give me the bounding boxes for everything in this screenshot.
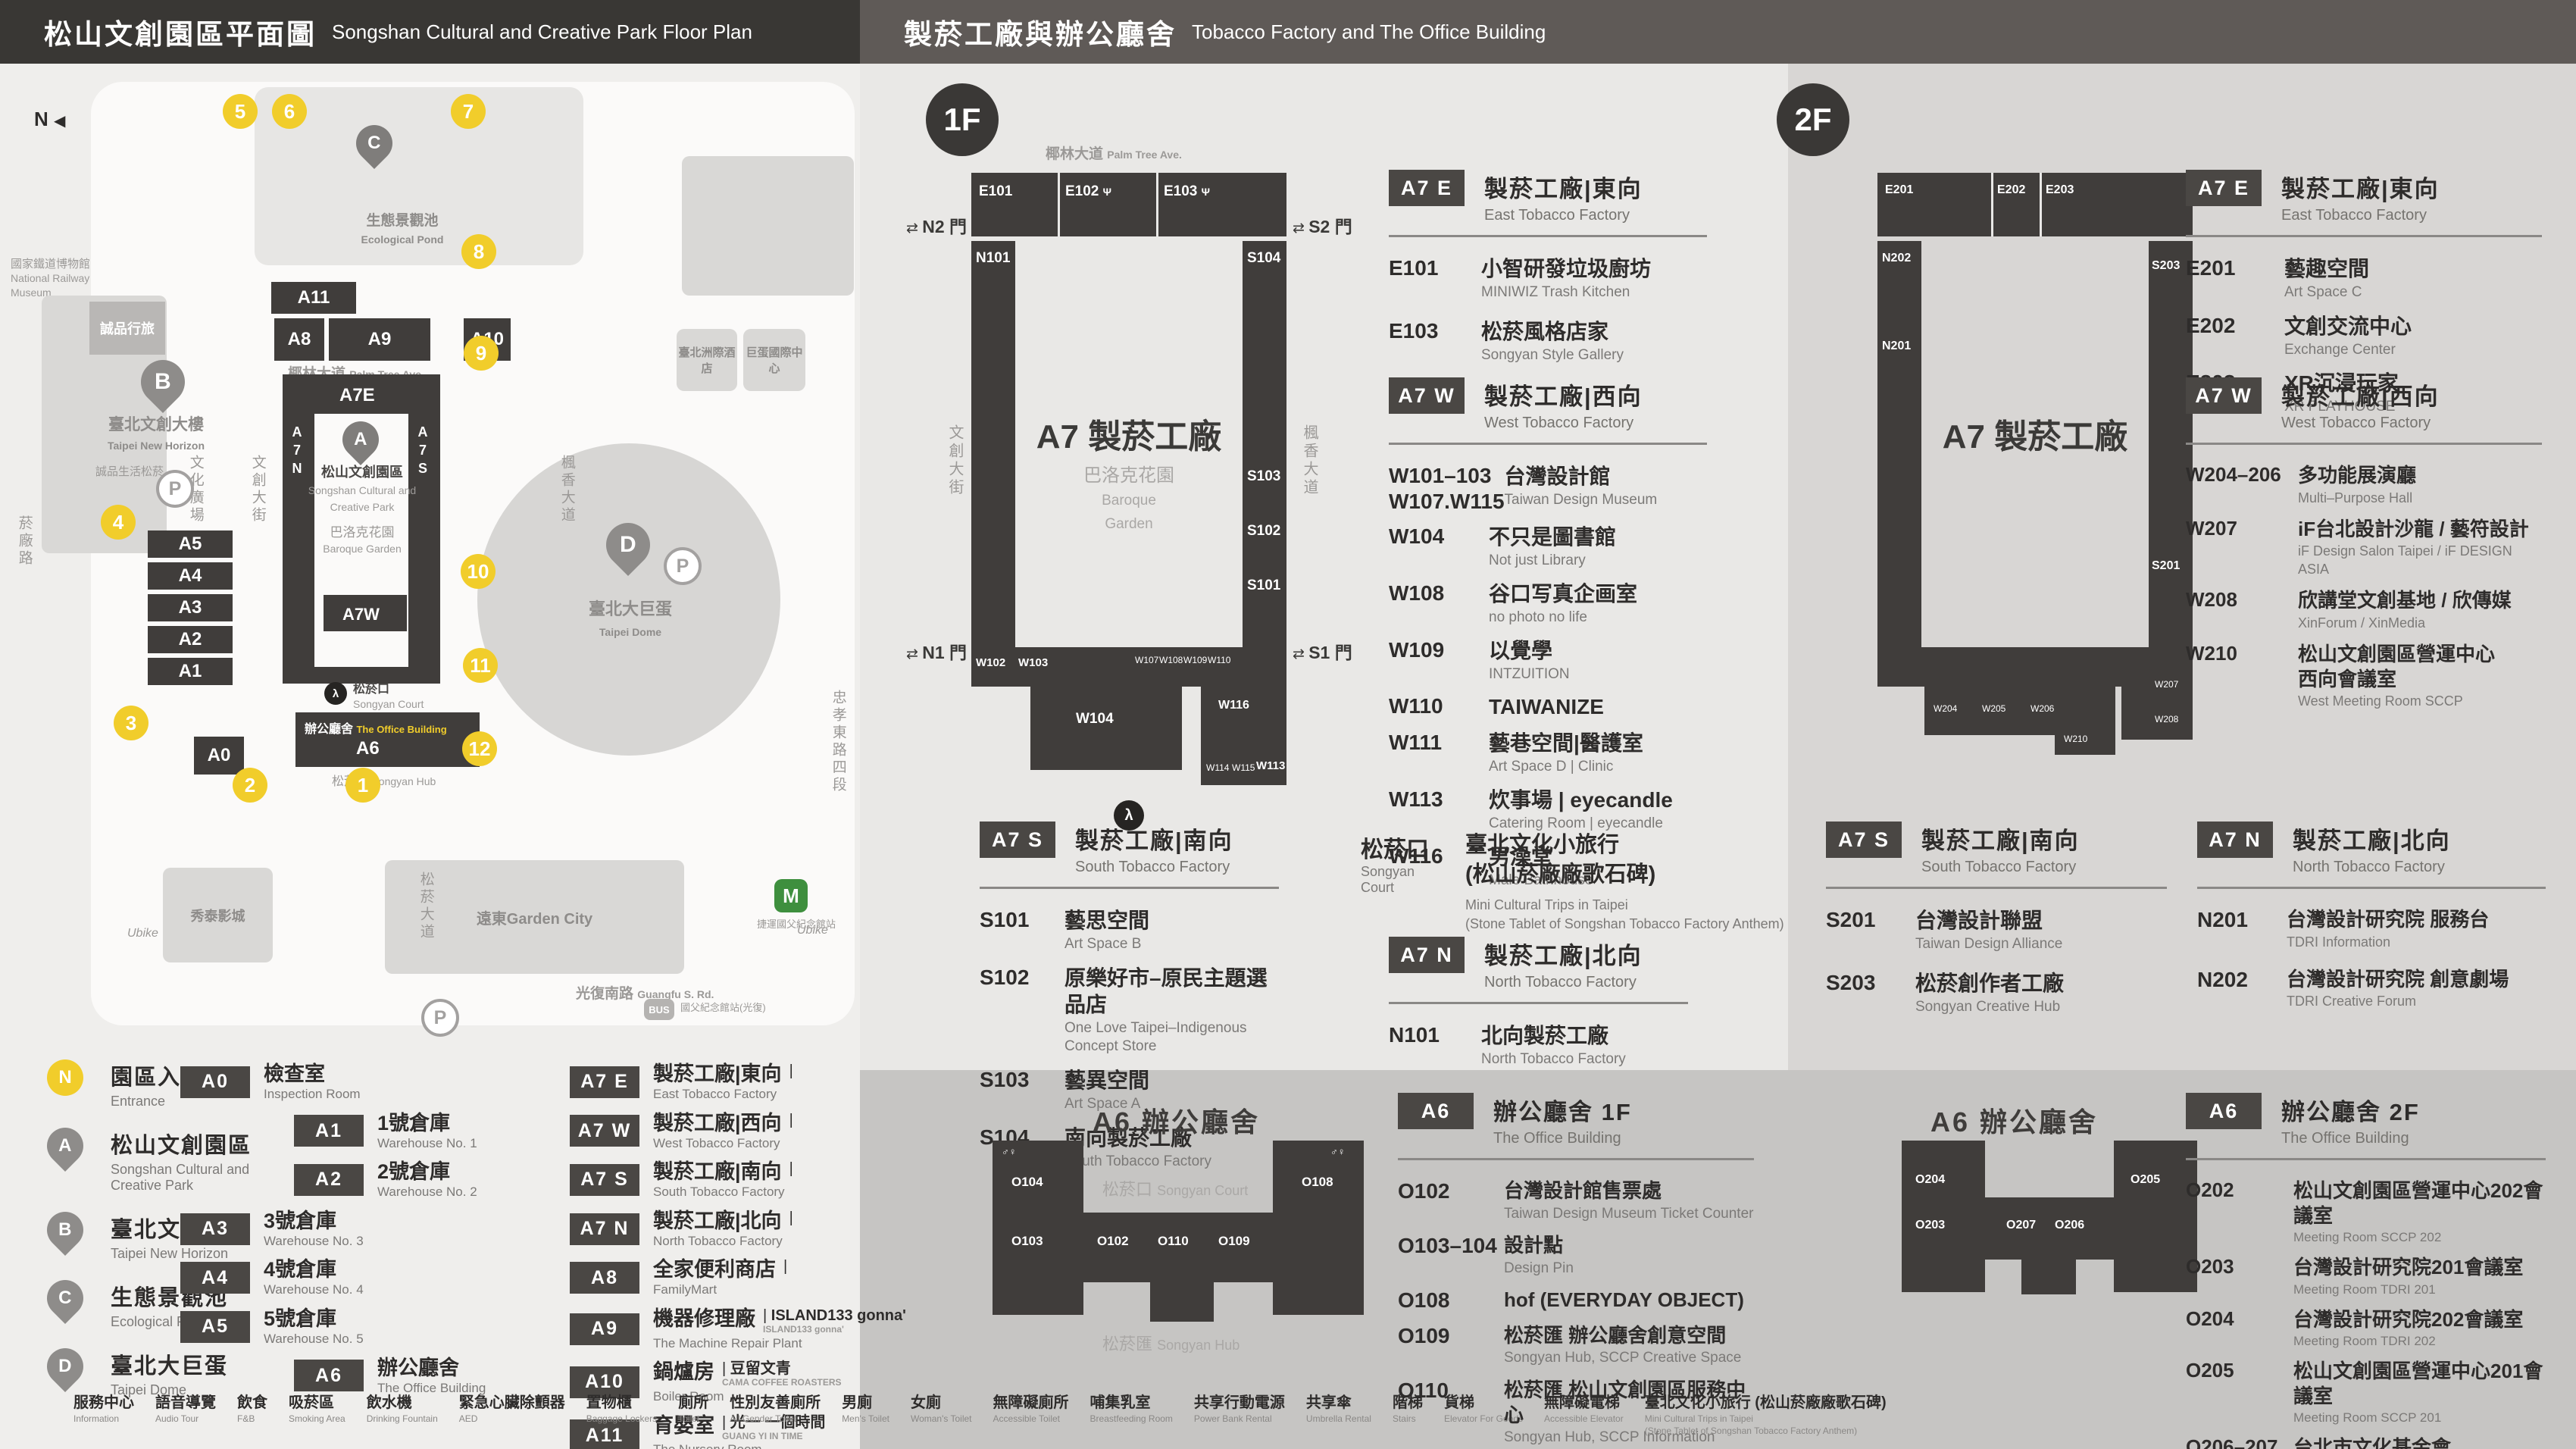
building-name-zh: 全家便利商店 xyxy=(653,1258,776,1282)
ubike-label: Ubike xyxy=(127,926,158,941)
facility-en: Woman's Toilet xyxy=(911,1413,972,1424)
room-label: W107 xyxy=(1135,655,1158,665)
room-label: W208 xyxy=(2155,714,2178,724)
room-label: W103 xyxy=(1018,656,1048,669)
room-label: N201 xyxy=(1882,340,1911,353)
building-code-badge: A5 xyxy=(180,1311,250,1343)
building-a9: A9 xyxy=(329,318,430,361)
building-code-badge: A4 xyxy=(180,1262,250,1294)
pond-label: 生態景觀池Ecological Pond xyxy=(334,212,470,249)
room-label: O206 xyxy=(2055,1219,2084,1232)
header-left: 松山文創園區平面圖 Songshan Cultural and Creative… xyxy=(0,0,860,64)
section-badge: A7 N xyxy=(2197,822,2273,858)
building-code-badge: A2 xyxy=(294,1164,364,1196)
office2-stem xyxy=(2021,1260,2076,1294)
section-zh: 製菸工廠|東向 xyxy=(1484,170,1643,204)
section-a7w-2f: A7 W 製菸工廠|西向West Tobacco Factory W204–20… xyxy=(2186,377,2542,720)
cc-blvd-label: 文創大街 xyxy=(249,455,267,524)
facility-zh: 廁所 xyxy=(678,1390,708,1412)
room-label: N101 xyxy=(976,250,1010,267)
building-code-badge: A0 xyxy=(180,1066,250,1098)
place-pin-icon: N xyxy=(47,1059,83,1096)
directory-row: E103 松菸風格店家Songyan Style Gallery xyxy=(1389,318,1707,365)
building-code-badge: A3 xyxy=(180,1213,250,1245)
directory-row: O206–207 台北市文化基金會松山文創園區營運中心Taipei Cultur… xyxy=(2186,1435,2546,1449)
office-building-label: 辦公廳舍 The Office Building xyxy=(305,718,447,737)
section-en: East Tobacco Factory xyxy=(1484,207,1643,224)
facility-legend-item: 服務中心Information xyxy=(67,1390,134,1424)
divider xyxy=(1826,887,2167,889)
divider xyxy=(1389,443,1707,445)
section-zh: 製菸工廠|北向 xyxy=(2293,822,2451,856)
section-en: The Office Building xyxy=(2281,1130,2420,1147)
section-a6-1f: A6 辦公廳舍 1FThe Office Building O102 台灣設計館… xyxy=(1398,1093,1754,1449)
divider xyxy=(980,887,1279,889)
parking-icon: P xyxy=(421,999,459,1037)
section-zh: 製菸工廠|西向 xyxy=(1484,377,1643,412)
section-badge: A7 E xyxy=(2186,170,2262,206)
building-code-badge: A7 W xyxy=(570,1115,639,1147)
place-pin-icon: C xyxy=(39,1272,91,1324)
facility-zh: 共享行動電源 xyxy=(1194,1390,1285,1412)
building-name-en: Warehouse No. 3 xyxy=(264,1234,364,1249)
facility-legend-item: 無障礙廁所Accessible Toilet xyxy=(986,1390,1069,1424)
facility-en: Drinking Fountain xyxy=(367,1413,438,1424)
bus-stop-icon: BUS xyxy=(644,999,674,1020)
room-label: N202 xyxy=(1882,252,1911,265)
room-label: W110 xyxy=(1208,655,1230,665)
gate-s2: ⇄ S2 門 xyxy=(1293,212,1352,238)
facility-zh: 語音導覽 xyxy=(155,1390,216,1412)
directory-row: S101 藝思空間Art Space B xyxy=(980,907,1279,954)
building-a5: A5 xyxy=(148,530,233,558)
directory-row: E202 文創交流中心Exchange Center xyxy=(2186,313,2542,360)
songyan-court-note: 松菸口Songyan Court 臺北文化小旅行(松山菸廠廠歌石碑) Mini … xyxy=(1361,831,1785,933)
building-a0: A0 xyxy=(194,737,244,775)
directory-row: W207 iF台北設計沙龍 / 藝符設計iF Design Salon Taip… xyxy=(2186,517,2542,578)
legend-building-row: A8 全家便利商店 FamilyMart xyxy=(455,1258,906,1297)
facility-legend-item: 緊急心臟除顫器AED xyxy=(452,1390,565,1424)
divider xyxy=(2186,443,2542,445)
entrance-number: 5 xyxy=(223,94,258,129)
legend-building-row: A7 E 製菸工廠|東向 East Tobacco Factory xyxy=(455,1062,906,1102)
railway-museum-label: 國家鐵道博物館National Railway Museum xyxy=(11,258,94,300)
gate-s1: ⇄ S1 門 xyxy=(1293,638,1352,664)
facility-legend-item: 語音導覽Audio Tour xyxy=(148,1390,216,1424)
office1-plan-title: A6 辦公廳舍 xyxy=(1093,1100,1260,1140)
directory-row: O110 松菸匯 松山文創園區服務中心Songyan Hub, SCCP Inf… xyxy=(1398,1378,1754,1449)
songyan-court-icon: λ xyxy=(324,682,347,705)
room-label: W205 xyxy=(1982,703,2005,714)
building-name-en: Inspection Room xyxy=(264,1087,361,1102)
section-zh: 辦公廳舍 2F xyxy=(2281,1093,2420,1127)
facility-zh: 緊急心臟除顫器 xyxy=(459,1390,565,1412)
plan-maple-label: 楓香大道 xyxy=(1299,424,1321,497)
floor-plan-poster: 松山文創園區平面圖 Songshan Cultural and Creative… xyxy=(0,0,2576,1449)
facility-legend-item: 廁所Toilet xyxy=(671,1390,708,1424)
room-label: O109 xyxy=(1218,1234,1250,1249)
tenant-brand xyxy=(789,1112,793,1129)
directory-row: W109 以覺學INTZUITION xyxy=(1389,637,1707,684)
place-pin-icon: D xyxy=(39,1341,91,1392)
directory-row: W111 藝巷空間|醫護室Art Space D | Clinic xyxy=(1389,730,1707,777)
directory-row: W208 欣講堂文創基地 / 欣傳媒XinForum / XinMedia xyxy=(2186,588,2542,632)
facility-legend-item: 性別友善廁所All Gender Toilet xyxy=(723,1390,821,1424)
floor2-badge: 2F xyxy=(1777,83,1849,156)
building-name-zh: 機器修理廠 xyxy=(653,1307,755,1331)
facility-en: Audio Tour xyxy=(155,1413,216,1424)
directory-row: O109 松菸匯 辦公廳舍創意空間Songyan Hub, SCCP Creat… xyxy=(1398,1323,1754,1368)
section-badge: A7 N xyxy=(1389,937,1465,973)
room-label: W109 xyxy=(1183,655,1207,665)
entrance-number: 12 xyxy=(462,731,497,766)
divider xyxy=(2186,1158,2546,1160)
room-label: W102 xyxy=(976,656,1005,669)
section-zh: 辦公廳舍 1F xyxy=(1493,1093,1632,1127)
room-label: W104 xyxy=(1076,711,1114,728)
park-name-label: 松山文創園區Songshan Cultural andCreative Park xyxy=(303,464,421,515)
entrance-number: 10 xyxy=(461,554,496,589)
section-badge: A6 xyxy=(2186,1093,2262,1129)
facility-en: All Gender Toilet xyxy=(730,1413,821,1424)
section-en: North Tobacco Factory xyxy=(2293,859,2451,876)
section-badge: A7 W xyxy=(1389,377,1465,414)
plan-ccblvd-label: 文創大街 xyxy=(944,424,966,497)
floor1-badge: 1F xyxy=(926,83,999,156)
north-indicator: N ◀ xyxy=(34,108,65,131)
room-label: O104 xyxy=(1011,1175,1043,1190)
building-code-badge: A7 N xyxy=(570,1213,639,1245)
building-a7w-label: A7W xyxy=(342,605,380,624)
tenant-brand: ISLAND133 gonna'ISLAND133 gonna' xyxy=(763,1307,906,1335)
section-badge: A6 xyxy=(1398,1093,1474,1129)
office1-stem xyxy=(1150,1282,1214,1322)
room-divider xyxy=(1058,173,1060,236)
section-a7n-1f: A7 N 製菸工廠|北向North Tobacco Factory N101 北… xyxy=(1389,937,1688,1085)
court-zh: 松菸口 xyxy=(1361,837,1429,862)
toilet-icon: ♂♀ xyxy=(1330,1146,1346,1157)
section-a7w-1f: A7 W 製菸工廠|西向West Tobacco Factory W101–10… xyxy=(1389,377,1707,900)
directory-row: W110 TAIWANIZE xyxy=(1389,693,1707,720)
section-badge: A7 E xyxy=(1389,170,1465,206)
section-zh: 製菸工廠|南向 xyxy=(1075,822,1233,856)
facility-zh: 共享傘 xyxy=(1306,1390,1371,1412)
building-name-zh: 製菸工廠|西向 xyxy=(653,1112,782,1135)
facility-en: Information xyxy=(73,1413,134,1424)
section-en: West Tobacco Factory xyxy=(2281,415,2440,432)
facility-legend-item: 男廁Men's Toilet xyxy=(835,1390,889,1424)
songyan-court-label: 松菸口Songyan Court xyxy=(353,682,424,712)
room-label: S102 xyxy=(1247,523,1280,540)
facility-en: Toilet xyxy=(678,1413,708,1424)
section-en: The Office Building xyxy=(1493,1130,1632,1147)
office2-left-wing xyxy=(1902,1141,1985,1292)
building-name-en: North Tobacco Factory xyxy=(653,1234,793,1249)
parking-icon: P xyxy=(664,547,702,585)
divider xyxy=(2186,235,2542,237)
directory-row: O204 台灣設計研究院202會議室Meeting Room TDRI 202 xyxy=(2186,1307,2546,1350)
divider xyxy=(2197,887,2546,889)
gate-n1: ⇄ N1 門 xyxy=(906,638,967,664)
entrance-number: 6 xyxy=(272,94,307,129)
legend-building-row: A7 S 製菸工廠|南向 South Tobacco Factory xyxy=(455,1160,906,1200)
facility-zh: 飲食 xyxy=(237,1390,267,1412)
zhongxiao-rd-label: 忠孝東路四段 xyxy=(829,690,847,794)
building-name-en: East Tobacco Factory xyxy=(653,1087,793,1102)
facility-en: Power Bank Rental xyxy=(1194,1413,1285,1424)
building-code-badge: A7 S xyxy=(570,1164,639,1196)
directory-row: E101 小智研發垃圾廚坊MINIWIZ Trash Kitchen xyxy=(1389,255,1707,302)
building-a2: A2 xyxy=(148,626,233,653)
legend-building-row: A4 4號倉庫Warehouse No. 4 xyxy=(173,1258,486,1297)
plan2f-w210-block xyxy=(2055,687,2115,755)
yanchang-rd-label: 菸廠路 xyxy=(15,515,33,568)
section-zh: 製菸工廠|北向 xyxy=(1484,937,1643,971)
toilet-icon: ♂♀ xyxy=(1002,1146,1017,1157)
baroque-garden-plan-label: 巴洛克花園BaroqueGarden xyxy=(1061,464,1197,535)
legend-building-row: A5 5號倉庫Warehouse No. 5 xyxy=(173,1307,486,1347)
entrance-number: 4 xyxy=(101,505,136,540)
plan2f-north-wing xyxy=(1877,241,1921,647)
facility-legend-item: 共享傘Umbrella Rental xyxy=(1299,1390,1371,1424)
office2-plan-title: A6 辦公廳舍 xyxy=(1930,1100,2098,1140)
section-zh: 製菸工廠|南向 xyxy=(1921,822,2080,856)
directory-row: W101–103W107.W115 台灣設計館Taiwan Design Mus… xyxy=(1389,463,1707,514)
directory-row: O103–104 設計點Design Pin xyxy=(1398,1233,1754,1278)
new-horizon-label: 臺北文創大樓Taipei New Horizon xyxy=(88,415,224,455)
directory-row: W104 不只是圖書館Not just Library xyxy=(1389,524,1707,571)
legend-building-row: A1 1號倉庫Warehouse No. 1 xyxy=(173,1112,486,1151)
place-pin-icon: A xyxy=(39,1120,91,1172)
building-name-en: The Machine Repair Plant xyxy=(653,1336,906,1351)
entrance-number: 7 xyxy=(451,94,486,129)
section-en: East Tobacco Factory xyxy=(2281,207,2440,224)
building-name-zh: 4號倉庫 xyxy=(264,1258,364,1282)
facility-en: Umbrella Rental xyxy=(1306,1413,1371,1424)
dome-intl-block: 巨蛋國際中心 xyxy=(743,329,805,391)
building-code-badge: A1 xyxy=(294,1115,364,1147)
building-code-badge: A7 E xyxy=(570,1066,639,1098)
building-a4: A4 xyxy=(148,562,233,590)
directory-row: W204–206 多功能展演廳Multi–Purpose Hall xyxy=(2186,463,2542,507)
tenant-brand: 豆留文青CAMA COFFEE ROASTERS xyxy=(722,1360,842,1388)
section-title-zh: 製菸工廠與辦公廳舍 xyxy=(904,11,1177,52)
mrt-station-label: 捷運國父紀念館站 xyxy=(747,919,846,931)
room-label: O102 xyxy=(1097,1234,1129,1249)
fnb-icon: Ψ xyxy=(1202,186,1210,198)
entrance-number: 8 xyxy=(461,234,496,269)
building-a3: A3 xyxy=(148,594,233,621)
building-name-en: Warehouse No. 5 xyxy=(264,1332,364,1347)
dome-label: 臺北大巨蛋Taipei Dome xyxy=(562,599,699,640)
plan1f-east-wing xyxy=(971,173,1286,236)
facility-zh: 無障礙廁所 xyxy=(993,1390,1069,1412)
hotel-block: 臺北洲際酒店 xyxy=(677,329,737,391)
facility-legend-item: 共享行動電源Power Bank Rental xyxy=(1187,1390,1285,1424)
building-name-en: West Tobacco Factory xyxy=(653,1136,793,1151)
facility-legend-item: 飲食F&B xyxy=(230,1390,267,1424)
building-name-zh: 檢查室 xyxy=(264,1062,361,1086)
legend-buildings-col1: A0 檢查室Inspection Room A1 1號倉庫Warehouse N… xyxy=(173,1062,486,1405)
directory-row: N101 北向製菸工廠North Tobacco Factory xyxy=(1389,1022,1688,1069)
room-label: O203 xyxy=(1915,1219,1945,1232)
tenant-brand xyxy=(789,1160,793,1178)
office1-court-label: 松菸口 Songyan Court xyxy=(1102,1179,1248,1201)
facility-zh: 置物櫃 xyxy=(586,1390,657,1412)
baroque-garden-label: 巴洛克花園Baroque Garden xyxy=(303,524,421,557)
room-label: W204 xyxy=(1934,703,1957,714)
facility-en: Accessible Toilet xyxy=(993,1413,1069,1424)
room-label: O110 xyxy=(1158,1234,1189,1249)
facility-en: Men's Toilet xyxy=(842,1413,889,1424)
plan-palm-ave-label: 椰林大道 Palm Tree Ave. xyxy=(1046,146,1182,164)
room-label: O205 xyxy=(2131,1173,2160,1187)
directory-row: O102 台灣設計館售票處Taiwan Design Museum Ticket… xyxy=(1398,1178,1754,1223)
facility-legend-item: 飲水機Drinking Fountain xyxy=(360,1390,438,1424)
room-divider xyxy=(2040,173,2042,236)
building-a1: A1 xyxy=(148,658,233,685)
page-title-en: Songshan Cultural and Creative Park Floo… xyxy=(332,20,752,44)
legend-building-row: A9 機器修理廠ISLAND133 gonna'ISLAND133 gonna'… xyxy=(455,1307,906,1350)
office2-center xyxy=(1985,1197,2114,1260)
directory-row: E201 藝趣空間Art Space C xyxy=(2186,255,2542,302)
room-label: W210 xyxy=(2064,734,2087,744)
directory-row: W210 松山文創園區營運中心西向會議室West Meeting Room SC… xyxy=(2186,642,2542,710)
directory-row: S102 原樂好市–原民主題選品店One Love Taipei–Indigen… xyxy=(980,965,1279,1056)
room-label: E102 Ψ xyxy=(1065,183,1111,200)
directory-row: N202 台灣設計研究院 創意劇場TDRI Creative Forum xyxy=(2197,967,2546,1011)
building-name-en: South Tobacco Factory xyxy=(653,1185,793,1200)
section-title-en: Tobacco Factory and The Office Building xyxy=(1192,20,1546,44)
building-name-en: The Nursery Room xyxy=(653,1442,825,1449)
office1-left-wing xyxy=(993,1141,1083,1315)
eslite-hotel-block: 誠品行旅 xyxy=(89,302,165,355)
divider xyxy=(1389,235,1707,237)
entrance-number: 9 xyxy=(464,336,499,371)
building-a6-label: A6 xyxy=(356,738,380,759)
section-en: North Tobacco Factory xyxy=(1484,974,1643,991)
plan2f-east-wing xyxy=(1877,173,2193,236)
showtime-block: 秀泰影城 xyxy=(163,868,273,962)
directory-row: S201 台灣設計聯盟Taiwan Design Alliance xyxy=(1826,907,2167,954)
directory-row: O203 台灣設計研究院201會議室Meeting Room TDRI 201 xyxy=(2186,1255,2546,1298)
directory-row: O202 松山文創園區營運中心202會議室Meeting Room SCCP 2… xyxy=(2186,1178,2546,1246)
building-name-en: FamilyMart xyxy=(653,1282,787,1297)
entrance-number: 11 xyxy=(463,648,498,683)
room-label: E103 Ψ xyxy=(1164,183,1210,200)
tenant-brand xyxy=(789,1210,793,1227)
north-arrow-icon: ◀ xyxy=(54,113,65,130)
facility-zh: 女廁 xyxy=(911,1390,972,1412)
room-label: W206 xyxy=(2030,703,2054,714)
room-label: O103 xyxy=(1011,1234,1043,1249)
section-en: South Tobacco Factory xyxy=(1921,859,2080,876)
directory-row: N201 台灣設計研究院 服務台TDRI Information xyxy=(2197,907,2546,951)
section-a7n-2f: A7 N 製菸工廠|北向North Tobacco Factory N201 台… xyxy=(2197,822,2546,1027)
section-en: West Tobacco Factory xyxy=(1484,415,1643,432)
facility-zh: 飲水機 xyxy=(367,1390,438,1412)
facility-en: F&B xyxy=(237,1413,267,1424)
room-label: W108 xyxy=(1159,655,1183,665)
room-label: S203 xyxy=(2152,259,2180,273)
section-en: South Tobacco Factory xyxy=(1075,859,1233,876)
plan1f-north-wing xyxy=(971,241,1015,647)
tenant-brand xyxy=(783,1258,787,1275)
legend-building-row: A7 N 製菸工廠|北向 North Tobacco Factory xyxy=(455,1210,906,1249)
office1-right-wing xyxy=(1273,1141,1364,1315)
room-label: S103 xyxy=(1247,468,1280,485)
section-a7e-1f: A7 E 製菸工廠|東向East Tobacco Factory E101 小智… xyxy=(1389,170,1707,380)
section-badge: A7 S xyxy=(980,822,1055,858)
room-label: W207 xyxy=(2155,679,2178,690)
header-right: 製菸工廠與辦公廳舍 Tobacco Factory and The Office… xyxy=(860,0,2576,64)
building-a7n-label: A7N xyxy=(289,424,305,479)
building-a7-south-edge xyxy=(283,667,440,684)
court-en: Songyan Court xyxy=(1361,864,1415,895)
section-a7s-2f: A7 S 製菸工廠|南向South Tobacco Factory S201 台… xyxy=(1826,822,2167,1032)
building-code-badge: A9 xyxy=(570,1313,639,1345)
songyan-ave-label: 松菸大道 xyxy=(417,872,435,941)
building-a11: A11 xyxy=(271,282,356,314)
place-pin-icon: B xyxy=(39,1204,91,1256)
facility-en: Smoking Area xyxy=(289,1413,345,1424)
court-note-text: 臺北文化小旅行(松山菸廠廠歌石碑) Mini Cultural Trips in… xyxy=(1465,831,1784,933)
room-label: O204 xyxy=(1915,1173,1945,1187)
room-label: S201 xyxy=(2152,559,2180,573)
room-label: O207 xyxy=(2006,1219,2036,1232)
building-a8: A8 xyxy=(274,318,324,361)
legend-building-row: A0 檢查室Inspection Room xyxy=(173,1062,486,1102)
room-label: S101 xyxy=(1247,577,1280,594)
gate-n2: ⇄ N2 門 xyxy=(906,212,967,238)
office1-hub-label: 松菸匯 Songyan Hub xyxy=(1102,1334,1240,1356)
building-name-zh: 3號倉庫 xyxy=(264,1210,364,1233)
facility-en: Baggage Lockers xyxy=(586,1413,657,1424)
room-label: E202 xyxy=(1997,183,2025,197)
room-label: W114 xyxy=(1206,762,1229,773)
building-name-zh: 5號倉庫 xyxy=(264,1307,364,1331)
room-label: W115 xyxy=(1232,762,1255,773)
building-name-en: Warehouse No. 4 xyxy=(264,1282,364,1297)
office2-right-wing xyxy=(2114,1141,2197,1292)
room-label: O108 xyxy=(1302,1175,1333,1190)
directory-row: W113 炊事場 | eyecandleCatering Room | eyec… xyxy=(1389,787,1707,834)
section-badge: A7 S xyxy=(1826,822,1902,858)
room-label: S104 xyxy=(1247,250,1280,267)
map-block xyxy=(682,156,854,296)
section-a6-2f: A6 辦公廳舍 2FThe Office Building O202 松山文創園… xyxy=(2186,1093,2546,1449)
facility-zh: 男廁 xyxy=(842,1390,889,1412)
entrance-number: 2 xyxy=(233,768,267,803)
page-title-zh: 松山文創園區平面圖 xyxy=(44,11,317,52)
metro-icon: M xyxy=(774,879,808,912)
eslite-spectrum-label: 誠品生活松菸 xyxy=(95,465,164,480)
ubike-label: Ubike xyxy=(797,923,828,938)
building-code-badge: A6 xyxy=(294,1360,364,1391)
bus-stop-label: 國父紀念館站(光復) xyxy=(680,1002,766,1014)
facility-legend-item: 吸菸區Smoking Area xyxy=(282,1390,345,1424)
section-zh: 製菸工廠|西向 xyxy=(2281,377,2440,412)
room-label: W116 xyxy=(1218,699,1249,712)
section-badge: A7 W xyxy=(2186,377,2262,414)
directory-row: O205 松山文創園區營運中心201會議室Meeting Room SCCP 2… xyxy=(2186,1359,2546,1426)
maple-ave-label: 楓香大道 xyxy=(558,455,576,524)
facility-zh: 性別友善廁所 xyxy=(730,1390,821,1412)
facility-en: Breastfeeding Room xyxy=(1090,1413,1173,1424)
facility-legend-item: 女廁Woman's Toilet xyxy=(904,1390,972,1424)
room-divider xyxy=(1991,173,1993,236)
room-label: E203 xyxy=(2046,183,2074,197)
